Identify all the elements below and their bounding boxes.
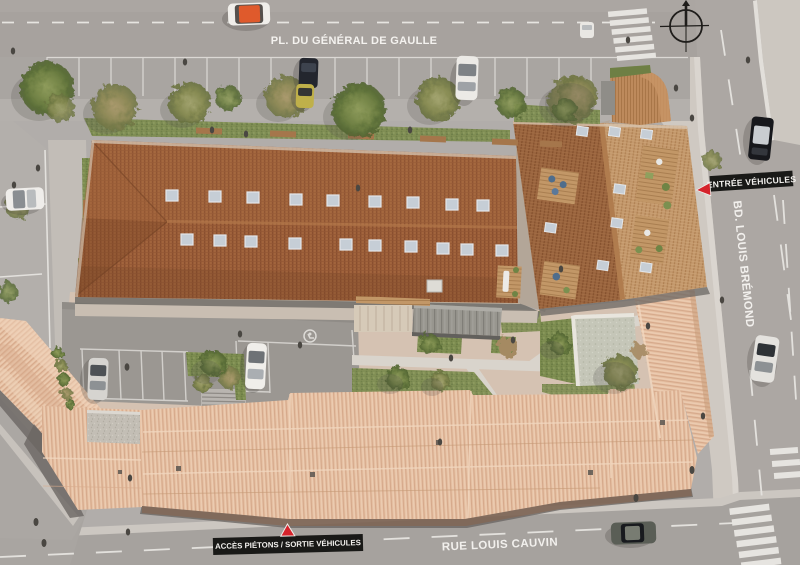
- svg-text:PL. DU GÉNÉRAL DE GAULLE: PL. DU GÉNÉRAL DE GAULLE: [271, 34, 438, 47]
